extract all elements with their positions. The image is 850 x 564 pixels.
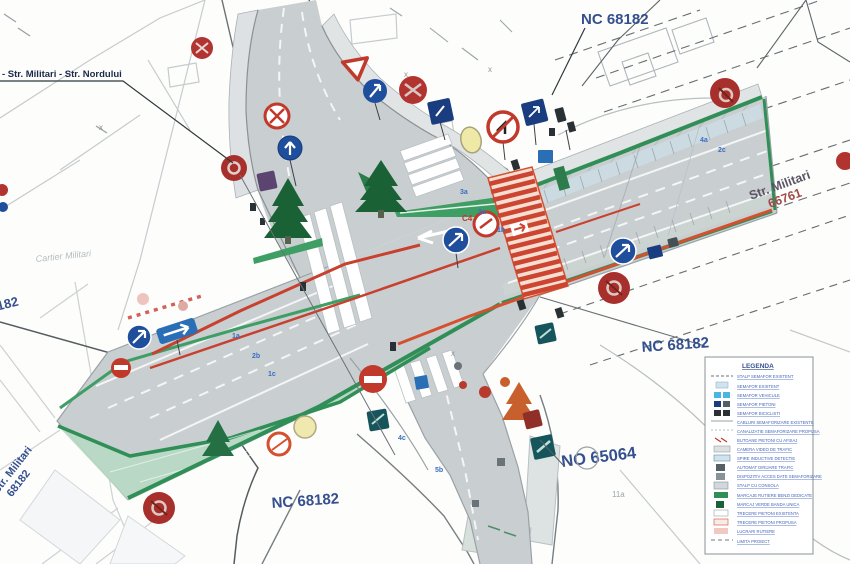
svg-text:LUCRARI RUTIERE: LUCRARI RUTIERE	[737, 529, 775, 534]
svg-text:1b: 1b	[497, 227, 505, 234]
svg-text:TRECERE PIETONI PROPUSA: TRECERE PIETONI PROPUSA	[737, 520, 797, 525]
svg-text:NC 68182: NC 68182	[581, 11, 649, 28]
svg-text:x: x	[404, 70, 408, 79]
svg-text:TRECERE PIETONI EXISTENTA: TRECERE PIETONI EXISTENTA	[737, 511, 799, 516]
svg-text:MARCAJE RUTIERE BENZI DEDICATE: MARCAJE RUTIERE BENZI DEDICATE	[737, 493, 812, 498]
svg-text:3a: 3a	[460, 189, 468, 196]
svg-text:BUTOANE PIETONI CU AFISAJ: BUTOANE PIETONI CU AFISAJ	[737, 438, 797, 443]
svg-text:1a: 1a	[232, 333, 240, 340]
svg-text:LIMITA PROIECT: LIMITA PROIECT	[737, 539, 770, 544]
svg-text:1c: 1c	[268, 371, 276, 378]
svg-text:C4: C4	[462, 214, 473, 223]
svg-text:x: x	[488, 65, 492, 74]
svg-text:LEGENDA: LEGENDA	[742, 363, 774, 370]
svg-text:AUTOMAT DIRIJARE TRAFIC: AUTOMAT DIRIJARE TRAFIC	[737, 465, 793, 470]
svg-text:SEMAFOR VEHICULE: SEMAFOR VEHICULE	[737, 393, 780, 398]
svg-text:SEMAFOR EXISTENT: SEMAFOR EXISTENT	[737, 384, 780, 389]
svg-text:11a: 11a	[612, 490, 625, 499]
svg-text:SEMAFOR BICICLISTI: SEMAFOR BICICLISTI	[737, 411, 780, 416]
svg-text:CABLURI SEMAFORIZARE EXISTENTE: CABLURI SEMAFORIZARE EXISTENTE	[737, 420, 814, 425]
svg-text:x: x	[451, 349, 455, 358]
svg-text:CANALIZATIE SEMAFORIZARE PROPU: CANALIZATIE SEMAFORIZARE PROPUSA	[737, 429, 820, 434]
svg-text:CAMERA VIDEO DE TRAFIC: CAMERA VIDEO DE TRAFIC	[737, 447, 792, 452]
svg-text:5b: 5b	[435, 467, 443, 474]
svg-text:SPIRE INDUCTIVE DETECTIE: SPIRE INDUCTIVE DETECTIE	[737, 456, 795, 461]
svg-text:4a: 4a	[700, 137, 708, 144]
svg-text:DISPOZITIV ACCES DATE SEMAFORI: DISPOZITIV ACCES DATE SEMAFORIZARE	[737, 474, 822, 479]
svg-text:x: x	[99, 123, 103, 132]
svg-text:4c: 4c	[398, 435, 406, 442]
svg-text:MARCAJ VERDE BANDA UNICA: MARCAJ VERDE BANDA UNICA	[737, 502, 800, 507]
svg-text:2c: 2c	[718, 147, 726, 154]
svg-text:STALP SEMAFOR EXISTENT: STALP SEMAFOR EXISTENT	[737, 374, 794, 379]
svg-text:- Str. Militari - Str. Nordulu: - Str. Militari - Str. Nordului	[2, 69, 122, 80]
svg-text:SEMAFOR PIETONI: SEMAFOR PIETONI	[737, 402, 776, 407]
svg-text:2a: 2a	[478, 209, 486, 216]
svg-text:STALP CU CONSOLA: STALP CU CONSOLA	[737, 483, 779, 488]
svg-text:2b: 2b	[252, 353, 260, 360]
